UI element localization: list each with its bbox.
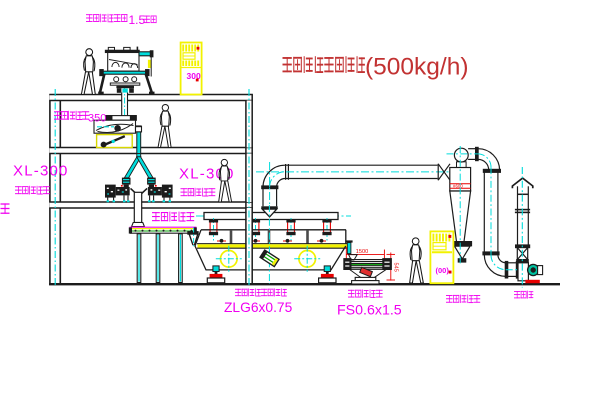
- svg-text:300: 300: [187, 71, 201, 81]
- svg-text:#600: #600: [453, 183, 463, 188]
- svg-text:1.5: 1.5: [129, 13, 146, 27]
- svg-text:FS0.6x1.5: FS0.6x1.5: [337, 303, 402, 319]
- svg-text:(500kg/h): (500kg/h): [365, 54, 469, 81]
- svg-text:350: 350: [88, 113, 106, 125]
- svg-text:545: 545: [393, 263, 399, 272]
- svg-text:XL-300: XL-300: [13, 163, 69, 180]
- svg-text:ZLG6x0.75: ZLG6x0.75: [224, 300, 293, 315]
- svg-text:(00): (00): [436, 266, 450, 275]
- svg-text:1500: 1500: [356, 249, 368, 255]
